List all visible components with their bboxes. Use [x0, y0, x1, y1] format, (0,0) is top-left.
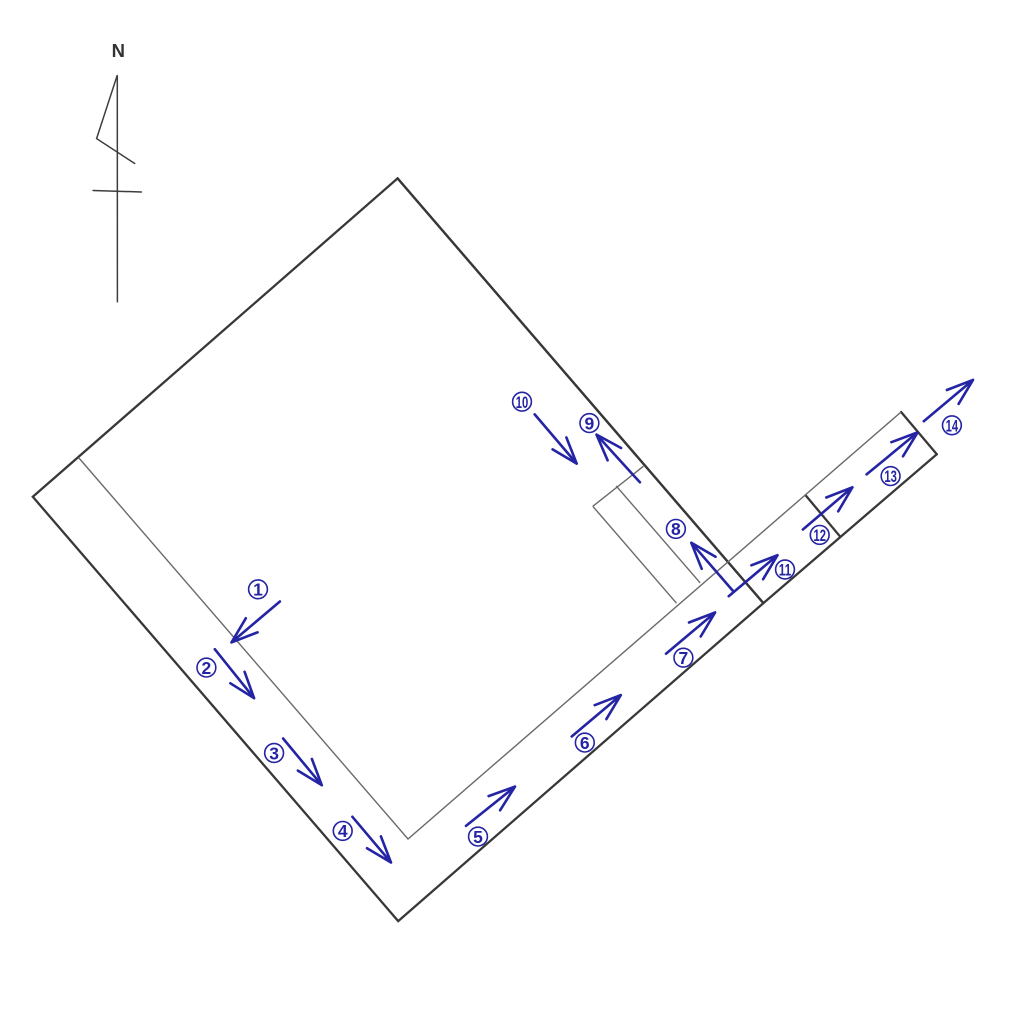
svg-text:7: 7	[679, 648, 689, 668]
svg-text:6: 6	[580, 733, 590, 753]
svg-text:11: 11	[779, 561, 792, 580]
svg-text:9: 9	[585, 413, 595, 433]
svg-text:14: 14	[946, 416, 959, 435]
svg-text:1: 1	[253, 580, 263, 600]
svg-text:4: 4	[338, 821, 348, 841]
svg-text:2: 2	[202, 658, 212, 678]
svg-text:12: 12	[813, 526, 826, 545]
svg-text:N: N	[112, 40, 125, 61]
svg-text:5: 5	[473, 827, 483, 847]
svg-text:10: 10	[516, 393, 529, 412]
svg-text:8: 8	[671, 519, 681, 539]
svg-text:13: 13	[884, 467, 897, 486]
svg-text:3: 3	[269, 743, 279, 763]
